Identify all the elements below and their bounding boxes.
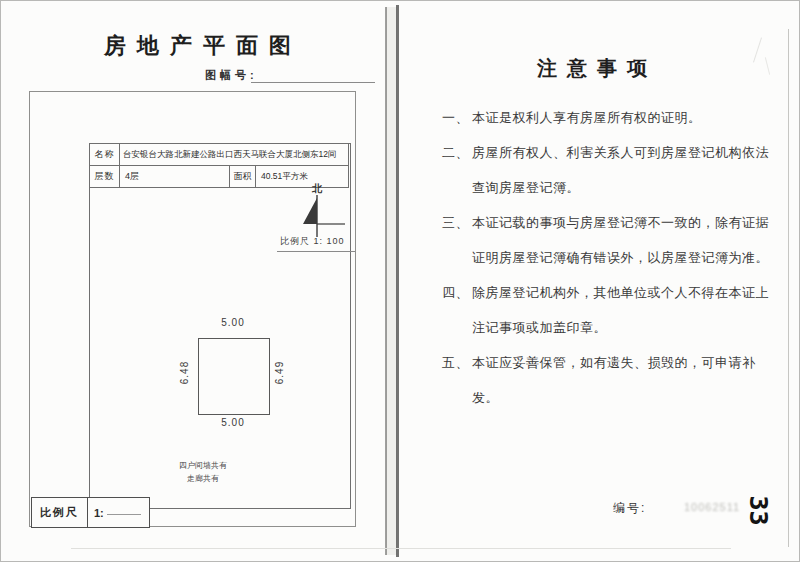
shared-wall-note: 四户间墙共有 走廊共有 (157, 459, 249, 485)
area-label-cell: 面积 (230, 166, 256, 187)
page-edge-line (788, 29, 789, 547)
book-gutter-line-right (396, 5, 399, 557)
scalebar-value: 1: (94, 507, 104, 519)
notice-item: 二、 房屋所有权人、利害关系人可到房屋登记机构依法查询房屋登记簿。 (442, 135, 776, 205)
scalebar-blank-line (107, 514, 141, 515)
name-value-cell: 台安银台大路北新建公路出口西天马联合大厦北侧东12间 (120, 144, 348, 165)
scalebar-box: 比例尺 1: (31, 497, 150, 528)
dimension-right: 6.49 (274, 353, 285, 393)
item-text: 本证应妥善保管，如有遗失、损毁的，可申请补发。 (472, 345, 776, 415)
shared-wall-note-line2: 走廊共有 (157, 472, 249, 485)
table-row-floors-area: 层数 4层 面积 40.51平方米 (90, 166, 348, 187)
notice-item: 三、 本证记载的事项与房屋登记簿不一致的，除有证据证明房屋登记簿确有错误外，以房… (442, 205, 776, 275)
item-number: 四、 (442, 275, 472, 345)
room-outline (198, 338, 270, 415)
drawing-scale-underline (277, 251, 355, 252)
sheet-number-label: 图幅号: (205, 68, 258, 83)
scanned-certificate-spread: 房地产平面图 图幅号: 名称 台安银台大路北新建公路出口西天马联合大厦北侧东12… (0, 0, 800, 562)
floors-value-cell: 4层 (120, 166, 230, 187)
notice-list: 一、 本证是权利人享有房屋所有权的证明。 二、 房屋所有权人、利害关系人可到房屋… (442, 100, 776, 415)
bottom-edge-shadow (71, 548, 731, 549)
item-text: 房屋所有权人、利害关系人可到房屋登记机构依法查询房屋登记簿。 (472, 135, 776, 205)
shared-wall-note-line1: 四户间墙共有 (157, 459, 249, 472)
drawing-scale-note: 比例尺 1: 100 (280, 235, 345, 248)
pencil-mark-2 (765, 57, 770, 75)
notice-item: 一、 本证是权利人享有房屋所有权的证明。 (442, 100, 776, 135)
name-label-cell: 名称 (90, 144, 120, 165)
pencil-mark-1 (753, 37, 762, 62)
item-number: 三、 (442, 205, 472, 275)
item-text: 除房屋登记机构外，其他单位或个人不得在本证上注记事项或加盖印章。 (472, 275, 776, 345)
property-info-table: 名称 台安银台大路北新建公路出口西天马联合大厦北侧东12间 层数 4层 面积 4… (89, 143, 349, 188)
item-number: 一、 (442, 100, 472, 135)
item-number: 五、 (442, 345, 472, 415)
scalebar-value-cell: 1: (88, 498, 149, 527)
area-value-cell: 40.51平方米 (256, 166, 348, 187)
floors-label-cell: 层数 (90, 166, 120, 187)
sheet-number-blank-line (251, 82, 375, 83)
dimension-top: 5.00 (198, 317, 268, 328)
item-number: 二、 (442, 135, 472, 205)
page-number: 33 (744, 495, 773, 525)
notice-item: 五、 本证应妥善保管，如有遗失、损毁的，可申请补发。 (442, 345, 776, 415)
serial-number-label: 编号: (613, 500, 646, 517)
scalebar-label: 比例尺 (32, 498, 88, 527)
notice-item: 四、 除房屋登记机构外，其他单位或个人不得在本证上注记事项或加盖印章。 (442, 275, 776, 345)
dimension-bottom: 5.00 (198, 417, 268, 428)
item-text: 本证是权利人享有房屋所有权的证明。 (472, 100, 776, 135)
book-gutter-line-left (385, 7, 387, 555)
plan-page-title: 房地产平面图 (104, 31, 302, 61)
notice-page-title: 注意事项 (537, 55, 657, 82)
serial-number-faint: 10062511 (684, 501, 740, 513)
item-text: 本证记载的事项与房屋登记簿不一致的，除有证据证明房屋登记簿确有错误外，以房屋登记… (472, 205, 776, 275)
table-row-name: 名称 台安银台大路北新建公路出口西天马联合大厦北侧东12间 (90, 144, 348, 166)
dimension-left: 6.48 (179, 353, 190, 393)
